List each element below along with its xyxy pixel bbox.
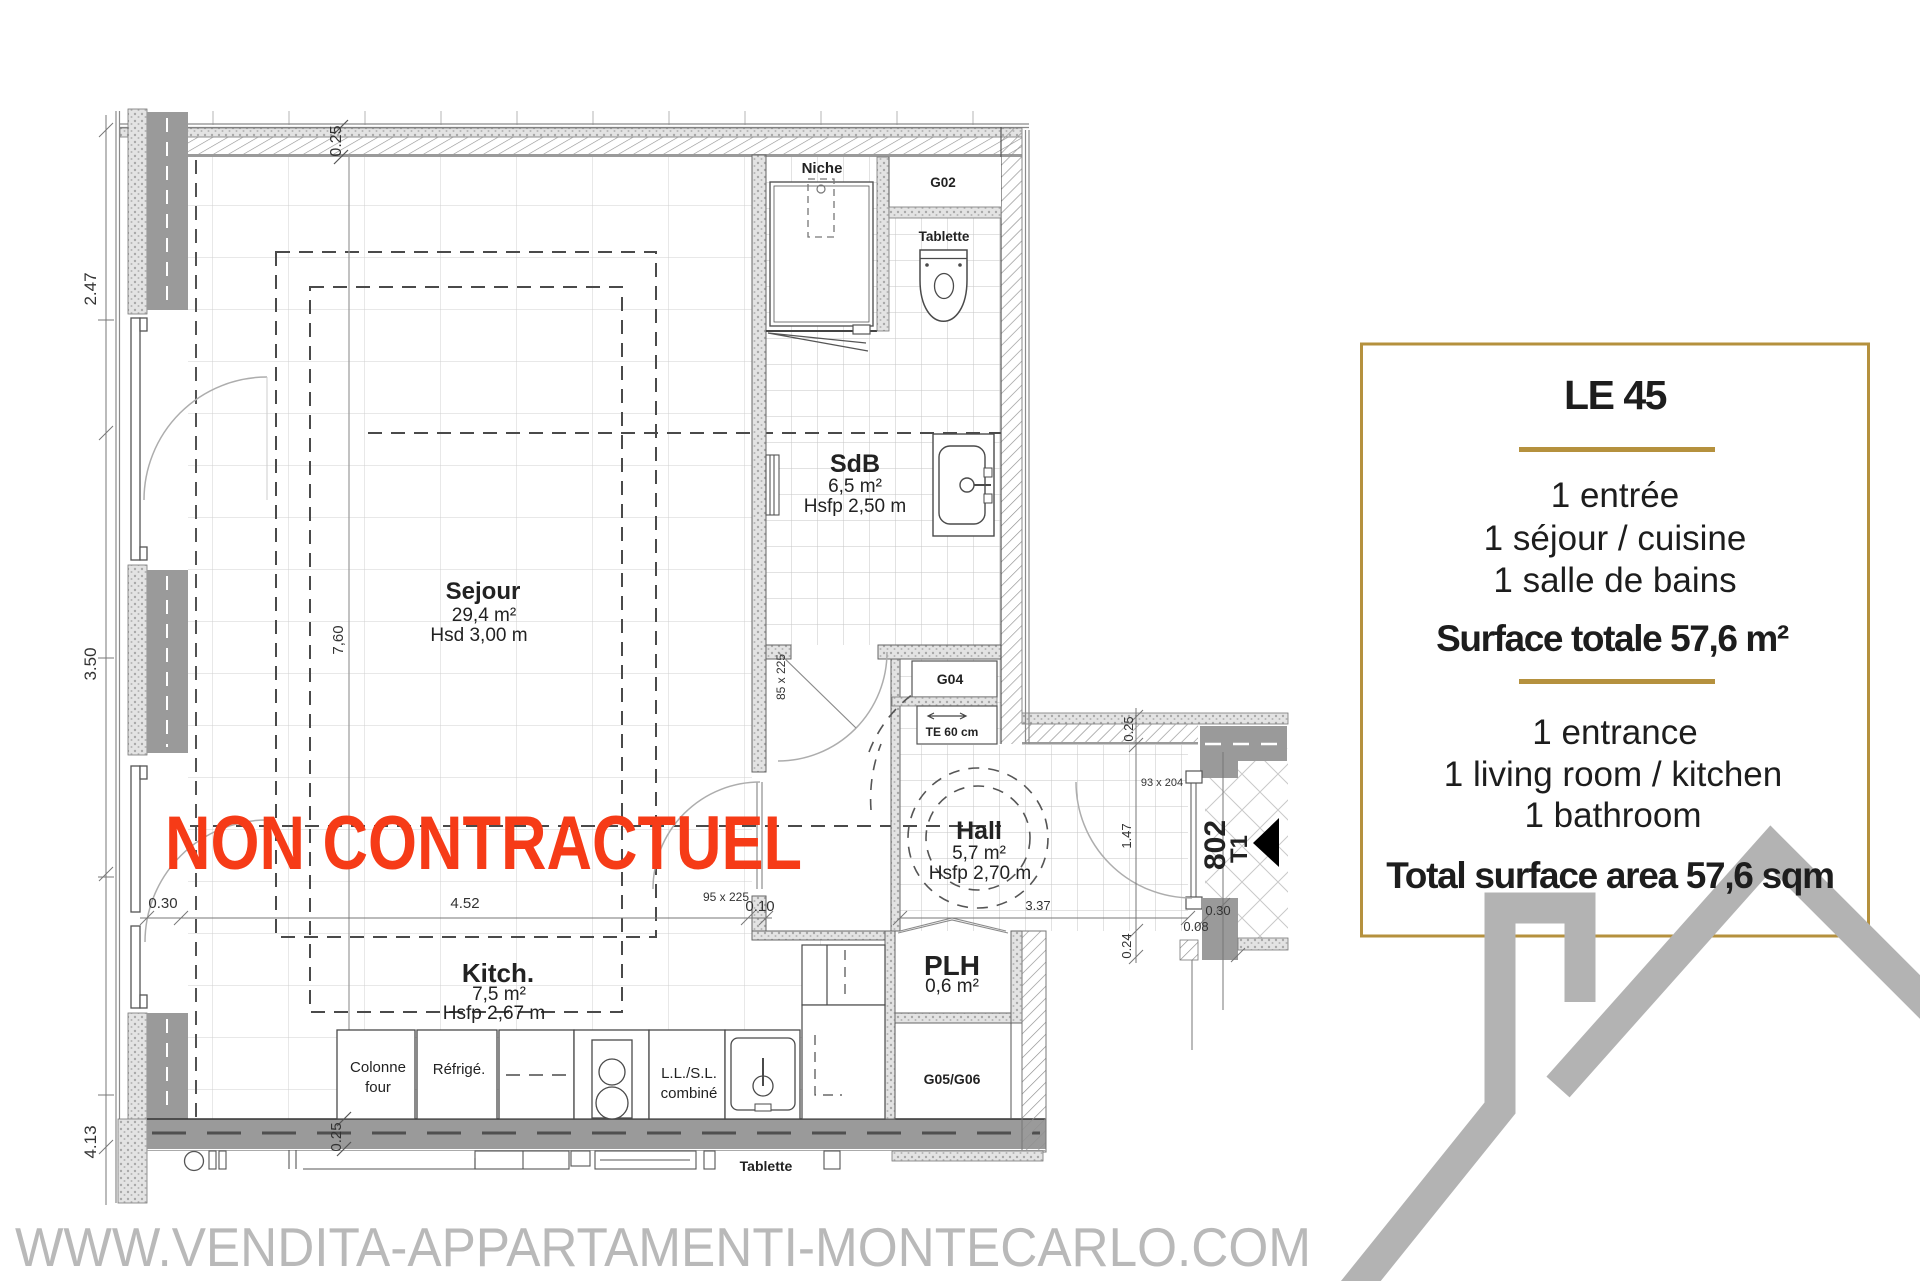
svg-text:NON CONTRACTUEL: NON CONTRACTUEL — [165, 801, 802, 886]
svg-text:four: four — [365, 1079, 391, 1096]
svg-text:Hsfp 2,50 m: Hsfp 2,50 m — [804, 496, 906, 517]
svg-text:0.08: 0.08 — [1183, 919, 1208, 934]
svg-text:Colonne: Colonne — [350, 1059, 406, 1076]
svg-text:WWW.VENDITA-APPARTAMENTI-MONTE: WWW.VENDITA-APPARTAMENTI-MONTECARLO.COM — [15, 1216, 1311, 1278]
svg-text:Tablette: Tablette — [919, 229, 970, 244]
svg-text:1 séjour / cuisine: 1 séjour / cuisine — [1484, 519, 1747, 558]
svg-text:G05/G06: G05/G06 — [924, 1071, 981, 1087]
svg-text:Hsfp 2,70 m: Hsfp 2,70 m — [929, 863, 1031, 884]
svg-text:Niche: Niche — [802, 160, 843, 177]
svg-text:7,5 m²: 7,5 m² — [472, 984, 526, 1005]
svg-text:0.25: 0.25 — [328, 125, 345, 156]
svg-text:Sejour: Sejour — [446, 578, 521, 605]
svg-text:Réfrigé.: Réfrigé. — [433, 1061, 486, 1078]
svg-text:SdB: SdB — [830, 450, 880, 478]
svg-text:T1: T1 — [1226, 835, 1253, 863]
svg-text:4.52: 4.52 — [450, 895, 479, 912]
svg-text:6,5 m²: 6,5 m² — [828, 476, 882, 497]
svg-text:Hall: Hall — [956, 817, 1002, 845]
svg-text:1 entrance: 1 entrance — [1532, 713, 1697, 752]
svg-text:G04: G04 — [937, 671, 964, 687]
svg-text:4.13: 4.13 — [81, 1125, 100, 1158]
svg-text:93 x 204: 93 x 204 — [1141, 777, 1183, 789]
svg-text:L.L./S.L.: L.L./S.L. — [661, 1065, 717, 1082]
svg-text:Tablette: Tablette — [740, 1158, 793, 1174]
svg-text:0.25: 0.25 — [1121, 716, 1136, 741]
svg-text:3.50: 3.50 — [81, 647, 100, 680]
svg-text:95 x 225: 95 x 225 — [703, 890, 749, 904]
svg-text:LE 45: LE 45 — [1564, 372, 1667, 418]
svg-text:3.37: 3.37 — [1025, 898, 1050, 913]
svg-text:Hsd 3,00 m: Hsd 3,00 m — [430, 625, 527, 646]
svg-text:TE 60 cm: TE 60 cm — [926, 725, 979, 739]
svg-text:Hsfp 2,67 m: Hsfp 2,67 m — [443, 1003, 545, 1024]
svg-text:0.24: 0.24 — [1119, 933, 1134, 958]
svg-text:7,60: 7,60 — [330, 625, 347, 654]
svg-text:Surface totale 57,6 m²: Surface totale 57,6 m² — [1436, 618, 1789, 659]
svg-text:5,7 m²: 5,7 m² — [952, 843, 1006, 864]
svg-text:0,6 m²: 0,6 m² — [925, 976, 979, 997]
svg-text:1.47: 1.47 — [1119, 823, 1134, 848]
svg-text:1 entrée: 1 entrée — [1551, 476, 1679, 515]
svg-text:2.47: 2.47 — [81, 272, 100, 305]
svg-text:G02: G02 — [930, 175, 956, 190]
svg-text:29,4 m²: 29,4 m² — [452, 605, 516, 626]
svg-text:0.30: 0.30 — [148, 895, 177, 912]
svg-text:85 x 225: 85 x 225 — [774, 654, 788, 700]
svg-text:Total surface area 57,6 sqm: Total surface area 57,6 sqm — [1386, 855, 1834, 896]
svg-text:0.25: 0.25 — [328, 1122, 345, 1151]
svg-text:combiné: combiné — [661, 1085, 718, 1102]
svg-text:1 living room / kitchen: 1 living room / kitchen — [1444, 755, 1782, 794]
svg-text:0.10: 0.10 — [745, 898, 774, 915]
svg-text:1 bathroom: 1 bathroom — [1524, 796, 1701, 835]
svg-text:0.30: 0.30 — [1205, 903, 1230, 918]
svg-text:1 salle de bains: 1 salle de bains — [1493, 561, 1736, 600]
